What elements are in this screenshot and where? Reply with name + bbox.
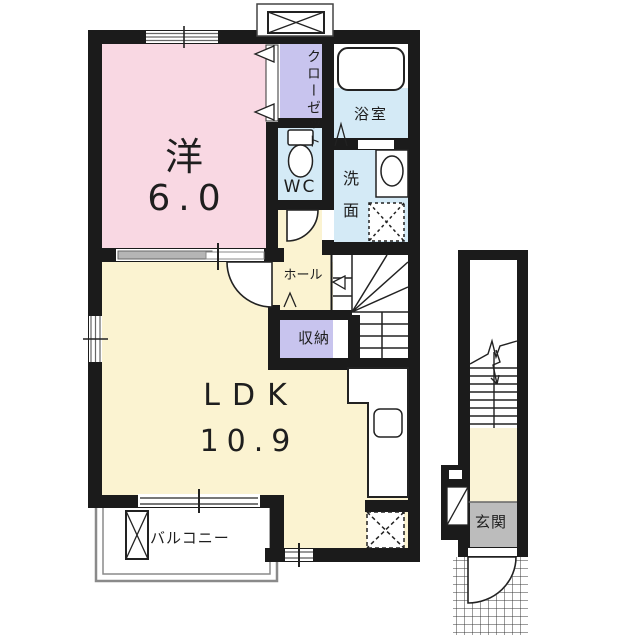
bathroom-label: 浴室 [334,103,408,124]
washing-machine-space [369,203,404,241]
floorplan-canvas: 洋 6.0 クローゼット 浴室 WC 洗面 ホール 収納 LDK 10.9 バル… [0,0,640,640]
storage-label: 収納 [280,327,348,348]
ldk-size: 10.9 [104,424,386,459]
western-room-size: 6.0 [102,178,266,219]
stair-landing-floor [470,428,517,502]
hall-label: ホール [274,264,332,283]
washroom-label: 洗面 [336,170,362,246]
washbasin [376,150,408,197]
entrance-label: 玄関 [465,511,517,532]
bathroom-door-opening [358,140,394,149]
ldk-label: LDK [104,378,386,413]
washroom-door-opening [322,210,334,240]
balcony-crossed-box [126,511,148,559]
western-room-label: 洋 [102,126,266,181]
refrigerator-space [367,512,404,548]
closet-label: クローゼット [281,49,323,117]
balcony-label: バルコニー [150,527,260,548]
bathtub [338,48,404,90]
wc-label: WC [278,177,322,197]
entrance-door-opening [468,548,517,556]
pipe-space-box [257,4,333,36]
